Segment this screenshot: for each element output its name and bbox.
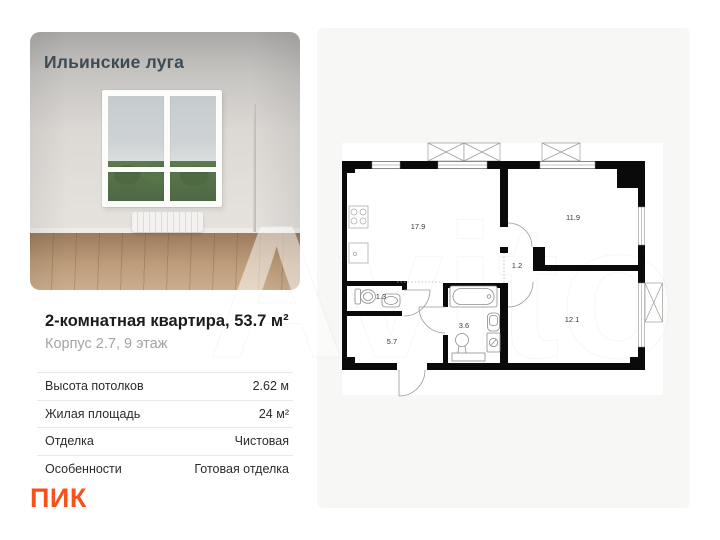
spec-label: Особенности: [45, 462, 122, 476]
room-area-bedroom2: 12.1: [565, 315, 580, 324]
spec-table: Высота потолков 2.62 м Жилая площадь 24 …: [37, 372, 293, 482]
spec-value: 24 м²: [259, 407, 289, 421]
spec-label: Высота потолков: [45, 379, 144, 393]
project-name-label: Ильинские луга: [44, 52, 184, 73]
spec-value: Готовая отделка: [194, 462, 289, 476]
spec-value: 2.62 м: [253, 379, 289, 393]
listing-subtitle: Корпус 2.7, 9 этаж: [45, 336, 305, 352]
kitchen-sink-icon: [349, 243, 368, 263]
wc-toilet-icon: [355, 289, 376, 304]
spec-label: Отделка: [45, 434, 94, 448]
room-area-bathroom: 3.6: [459, 321, 469, 330]
spec-row-features: Особенности Готовая отделка: [37, 455, 293, 483]
listing-title: 2-комнатная квартира, 53.7 м²: [45, 312, 305, 331]
pik-developer-logo: ПИК: [30, 483, 87, 514]
spec-value: Чистовая: [235, 434, 289, 448]
spec-label: Жилая площадь: [45, 407, 140, 421]
spec-row-ceiling-height: Высота потолков 2.62 м: [37, 372, 293, 400]
bathroom-toilet-icon: [488, 313, 500, 331]
room-area-corridor: 1.2: [512, 261, 522, 270]
kitchen-stove-icon: [349, 206, 368, 228]
room-area-hallway: 5.7: [387, 337, 397, 346]
entrance-opening: [397, 363, 427, 370]
door-swing-arcs: [399, 223, 533, 396]
apartment-photo: Ильинские луга: [30, 32, 300, 290]
spec-row-living-area: Жилая площадь 24 м²: [37, 400, 293, 428]
floor-plan: 17.9 11.9 1.2 1.3 3.6 5.7 12.1: [342, 138, 663, 400]
bathtub-icon: [450, 286, 497, 307]
room-area-labels: 17.9 11.9 1.2 1.3 3.6 5.7 12.1: [376, 213, 580, 346]
room-area-bedroom1: 11.9: [566, 213, 580, 222]
bathroom-sink-icon: [452, 334, 485, 362]
room-area-kitchen: 17.9: [411, 222, 426, 231]
spec-row-finish: Отделка Чистовая: [37, 427, 293, 455]
washing-machine-icon: [487, 333, 500, 352]
plan-dashed-lines: [397, 253, 504, 283]
room-area-wc: 1.3: [376, 292, 386, 301]
plan-windows: [372, 162, 645, 348]
